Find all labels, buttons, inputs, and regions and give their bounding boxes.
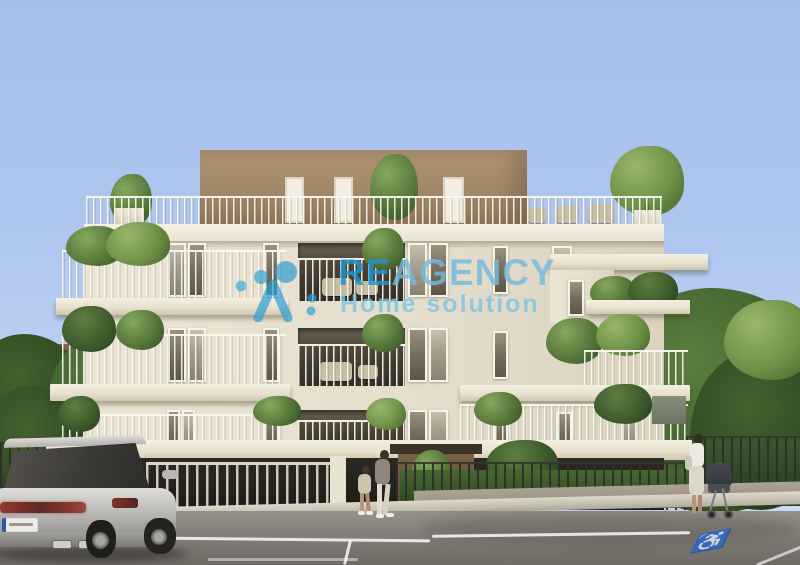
balcony-planting	[58, 396, 100, 432]
stroller-wheel	[724, 510, 733, 519]
suv-exhaust	[52, 540, 72, 549]
rooftop-equipment-box	[652, 396, 686, 424]
window	[429, 328, 448, 382]
watermark-tagline: Home solution	[340, 290, 540, 319]
adult-leg	[382, 484, 390, 515]
suv-license-plate	[2, 518, 38, 532]
suv-rear-glass	[0, 443, 154, 493]
child-leg	[365, 493, 371, 512]
balcony-planting	[62, 306, 116, 352]
balcony-railing	[584, 350, 688, 388]
woman-leg	[698, 495, 702, 513]
pedestrian-pair	[358, 450, 404, 530]
asphalt-shadow	[420, 511, 800, 545]
woman-with-stroller	[684, 428, 740, 524]
adult-shoe	[376, 514, 384, 518]
woman-leg	[692, 495, 696, 513]
stroller-wheel	[707, 510, 716, 519]
adult-leg	[377, 484, 382, 515]
balcony-planting	[106, 222, 170, 266]
window	[493, 331, 508, 379]
adult-torso	[375, 459, 390, 485]
balcony-planting	[253, 396, 301, 426]
stroller-canopy	[706, 462, 732, 486]
child-leg	[360, 493, 364, 512]
suv-wheel-rim	[92, 532, 109, 549]
watermark-brand-suffix: AGENCY	[391, 252, 555, 293]
parked-suv	[0, 436, 184, 564]
suv-mirror	[162, 470, 178, 479]
child-torso	[358, 474, 371, 494]
adult-shoe	[386, 513, 394, 517]
window	[408, 328, 427, 382]
window-glass	[431, 330, 446, 380]
architectural-rendering-scene: ♿	[0, 0, 800, 565]
balcony-planting	[594, 384, 652, 424]
window-glass	[410, 330, 425, 380]
watermark: REAGENCY Home solution	[224, 244, 624, 324]
balcony-planting	[474, 392, 522, 426]
suv-taillight	[0, 502, 86, 513]
woman-skirt	[689, 466, 704, 496]
parking-line	[208, 558, 358, 561]
watermark-brand: REAGENCY	[338, 252, 556, 294]
child-shoe	[366, 511, 373, 515]
watermark-brand-prefix: RE	[338, 252, 391, 293]
suv-taillight	[112, 498, 138, 508]
plate-euroband	[2, 518, 6, 532]
balcony-planting	[116, 310, 164, 350]
stroller-frame	[709, 490, 717, 512]
watermark-logo-icon	[228, 252, 324, 322]
balcony-planting	[366, 398, 406, 430]
woman-top	[690, 443, 704, 467]
stroller-body	[708, 484, 730, 493]
plate-text-smudge	[9, 523, 33, 526]
child-shoe	[358, 511, 365, 515]
suv-wheel-rim	[151, 529, 167, 545]
window-glass	[495, 333, 506, 377]
